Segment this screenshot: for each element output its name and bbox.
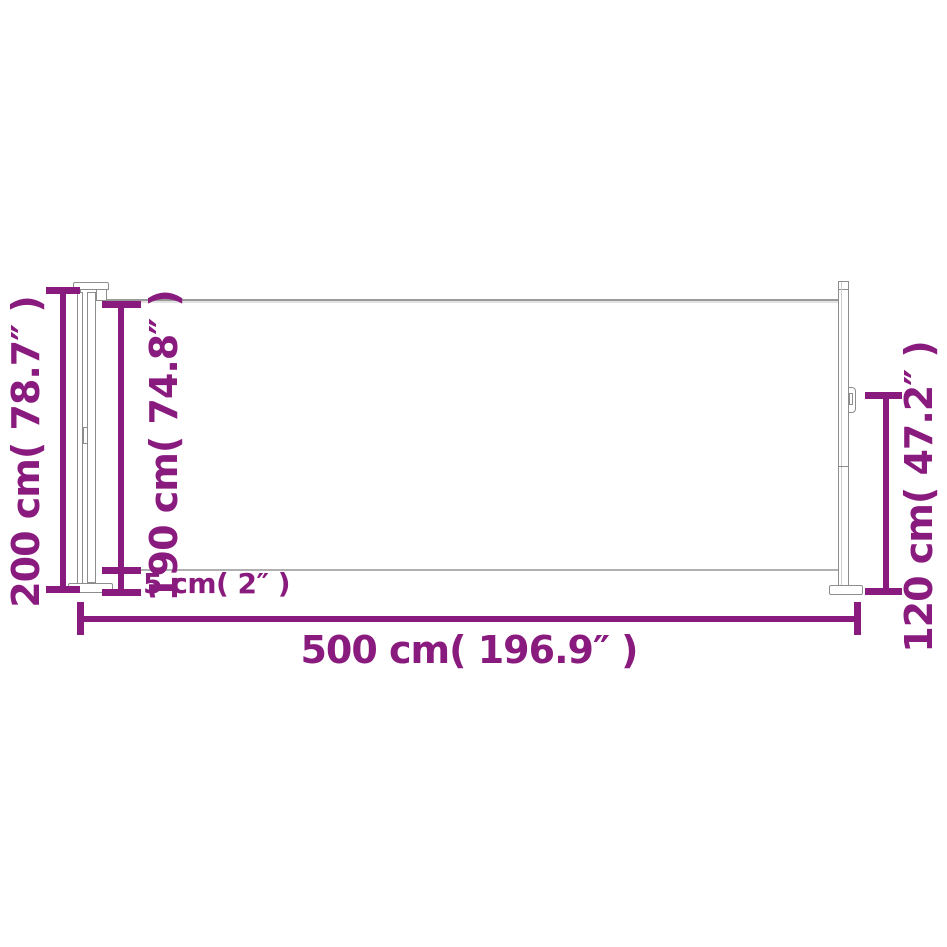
dim-total-height-cap-bottom bbox=[46, 586, 80, 593]
end-post-handle-inner bbox=[849, 393, 853, 405]
dim-total-height-line bbox=[60, 291, 66, 589]
dim-post-height-line bbox=[883, 396, 889, 592]
dim-total-length-line bbox=[80, 616, 858, 622]
dim-ground-clearance-label: 5 cm( 2″ ) bbox=[143, 570, 290, 598]
dim-canopy-height-line bbox=[118, 305, 124, 570]
end-post-inner-line bbox=[841, 282, 842, 587]
end-post-foot bbox=[829, 585, 863, 595]
dim-total-height-label: 200 cm( 78.7″ ) bbox=[7, 296, 45, 608]
dimension-diagram: 200 cm( 78.7″ ) 190 cm( 74.8″ ) 5 cm( 2″… bbox=[0, 0, 947, 947]
cassette-back-bar bbox=[87, 292, 96, 583]
end-post-tick-line bbox=[839, 466, 848, 467]
dim-total-length-cap-right bbox=[854, 602, 861, 635]
cassette-fabric-stub bbox=[96, 289, 107, 301]
cassette-bracket bbox=[83, 427, 88, 444]
dim-post-height-label: 120 cm( 47.2″ ) bbox=[900, 341, 938, 653]
awning-top-edge bbox=[105, 299, 839, 301]
end-post-bar bbox=[838, 281, 849, 588]
dim-total-length-label: 500 cm( 196.9″ ) bbox=[300, 631, 637, 669]
dim-ground-clearance-cap-bottom bbox=[102, 589, 141, 596]
dim-canopy-height-label: 190 cm( 74.8″ ) bbox=[145, 290, 183, 602]
